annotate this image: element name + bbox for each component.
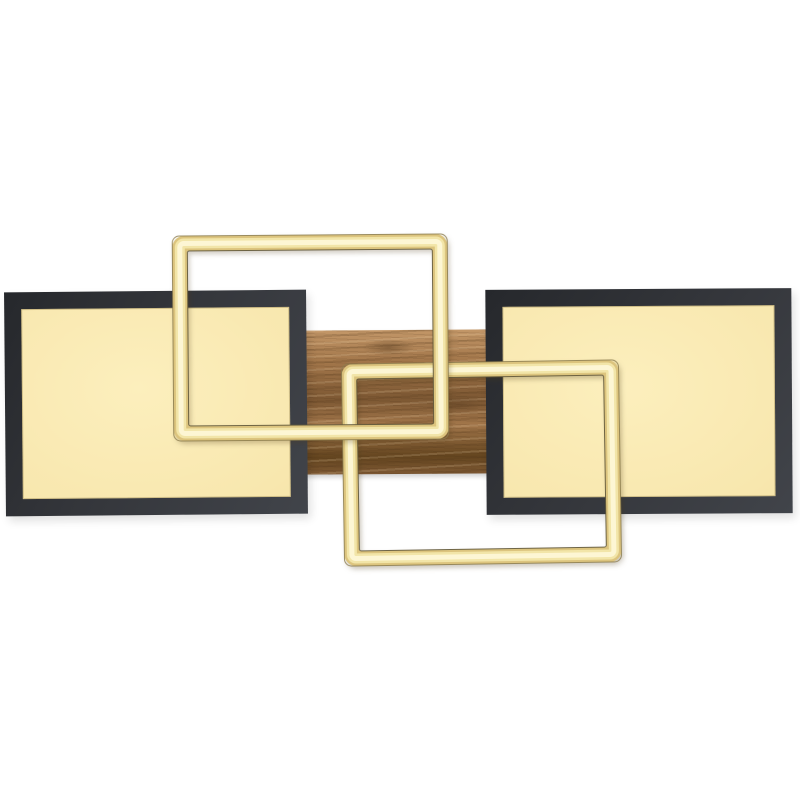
gold-led-frame-upper-left xyxy=(159,221,462,454)
product-photo xyxy=(0,0,800,800)
